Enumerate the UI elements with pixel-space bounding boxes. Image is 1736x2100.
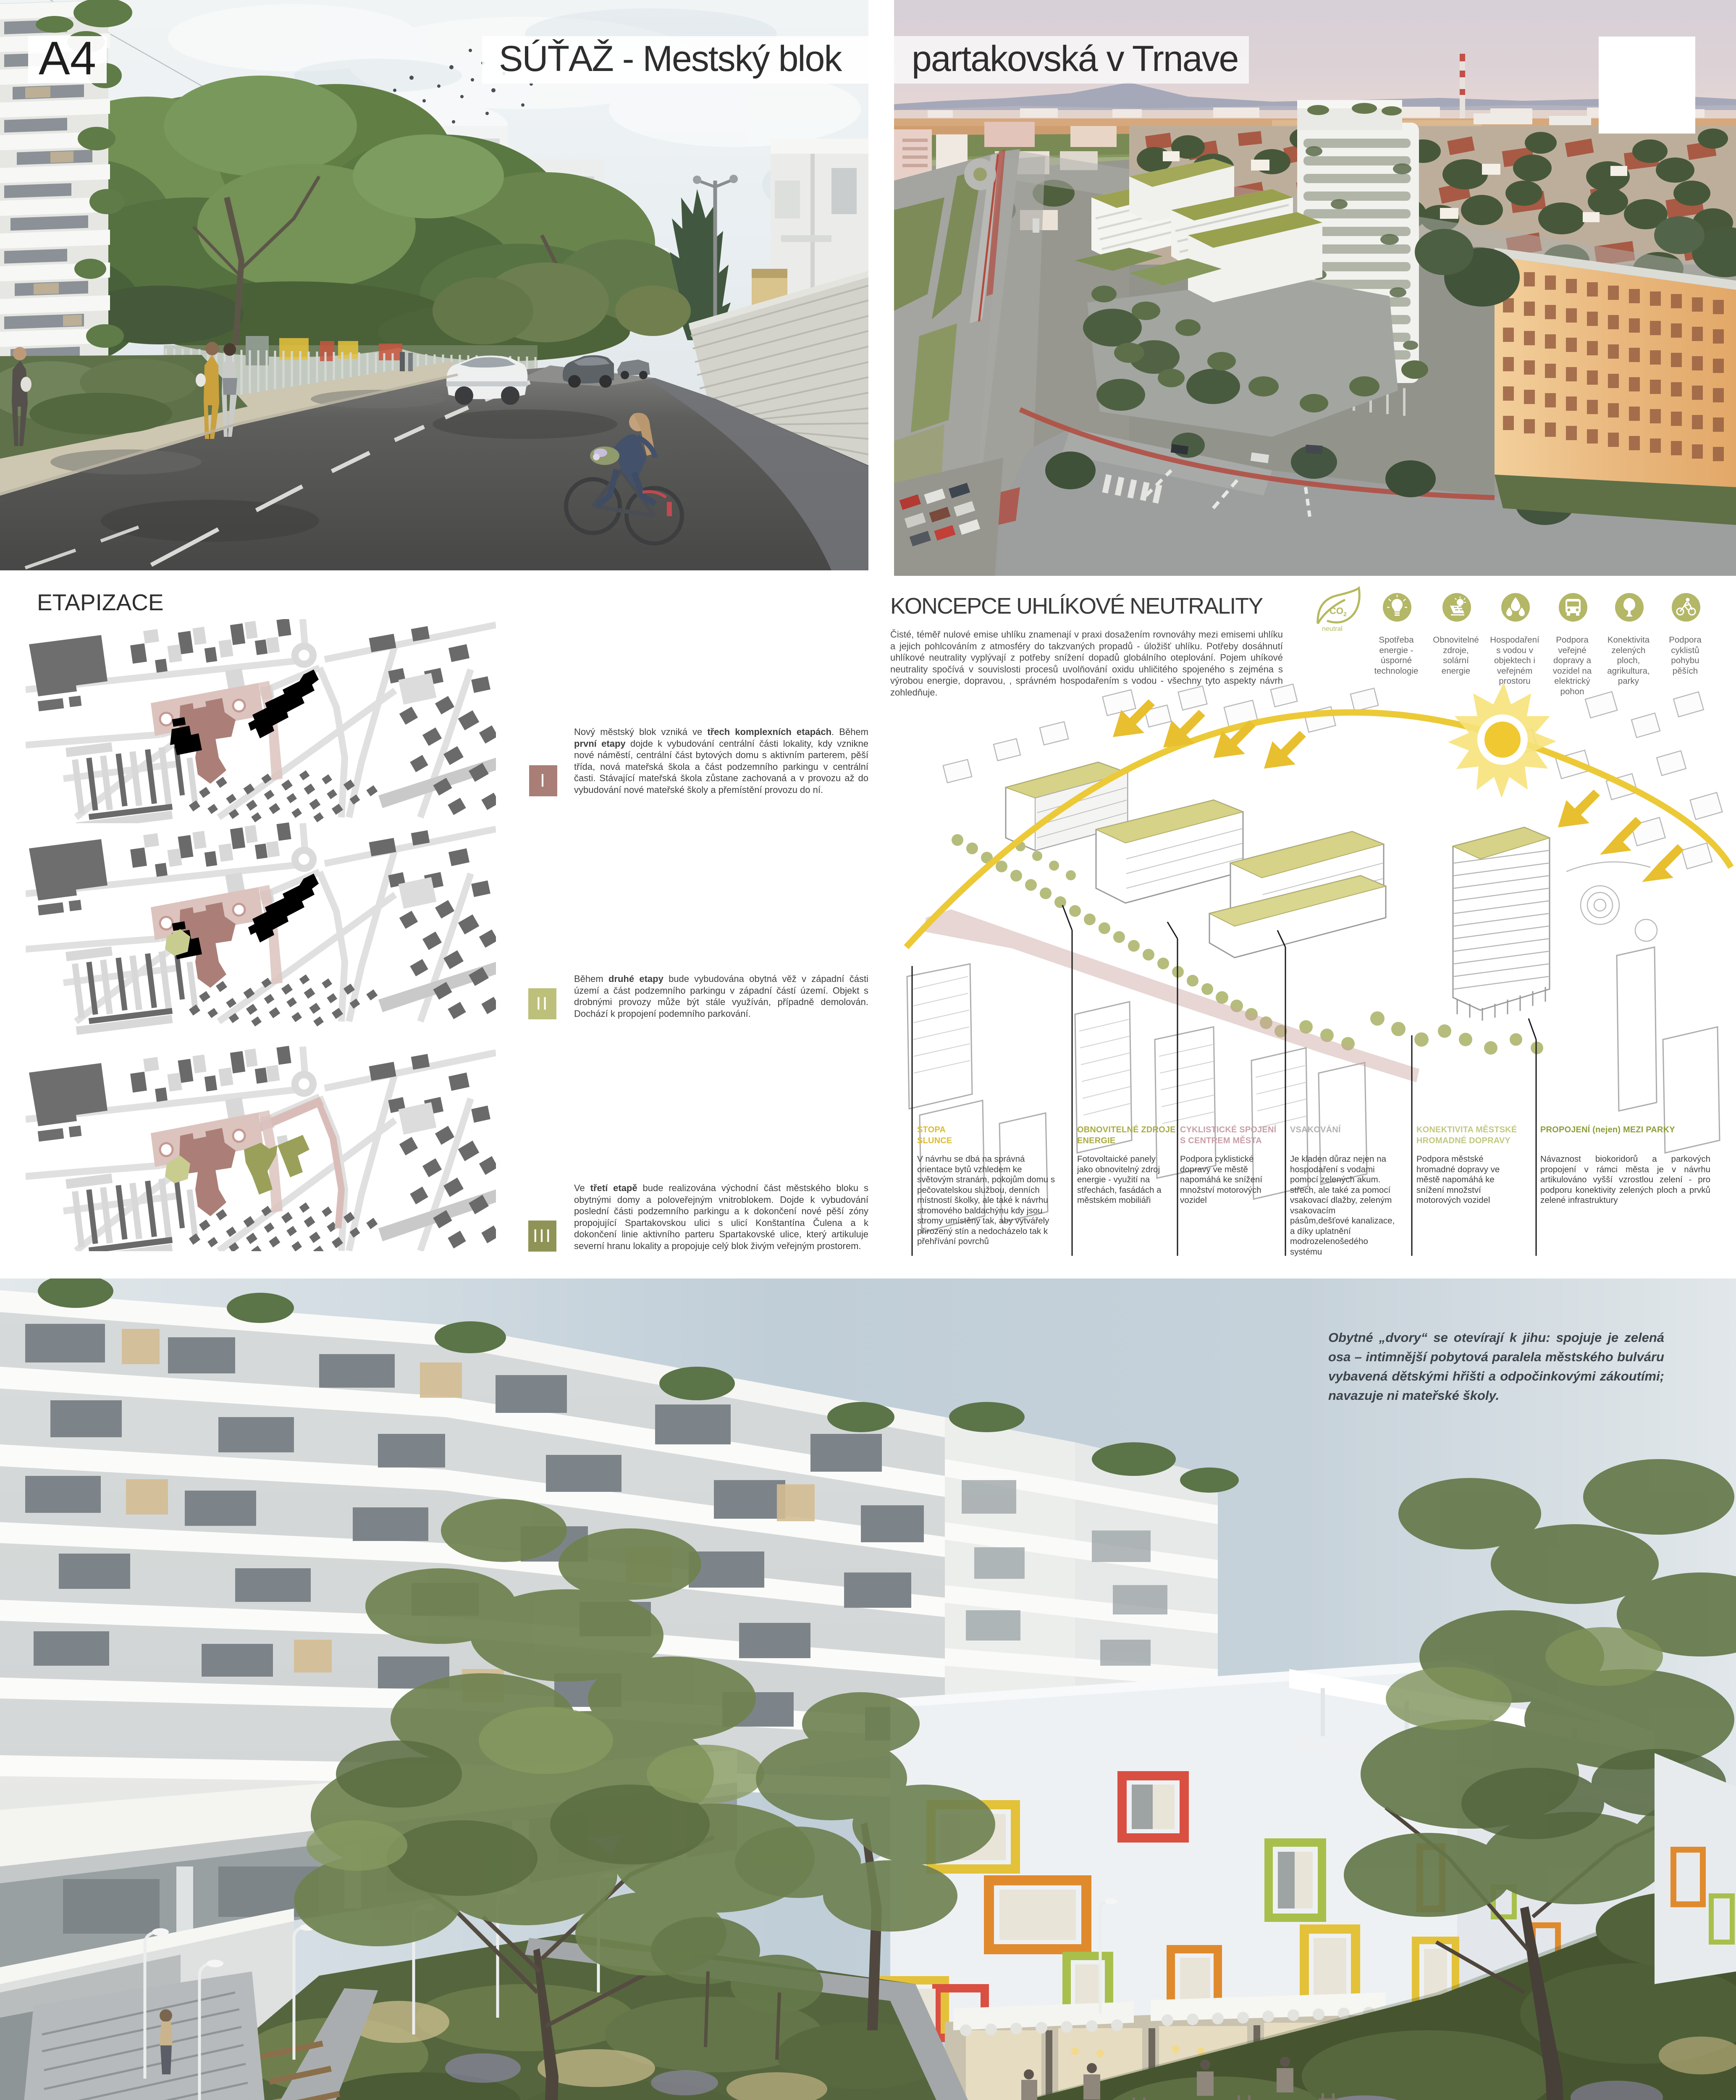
svg-text:CO2: CO2 <box>1330 606 1347 617</box>
svg-text:neutral: neutral <box>1322 625 1343 633</box>
